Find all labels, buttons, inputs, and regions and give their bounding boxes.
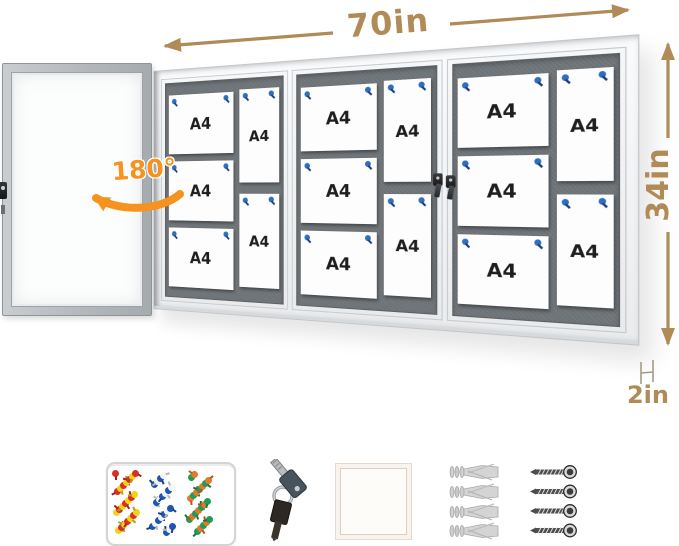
push-pin-icon <box>598 198 606 205</box>
wall-anchors-icon <box>448 464 502 544</box>
push-pin-icon <box>462 160 469 166</box>
push-pin-icon <box>269 90 274 96</box>
push-pin-icon <box>388 84 394 90</box>
push-pin-box <box>106 462 236 546</box>
push-pin-icon <box>561 199 568 206</box>
paper-label: A4 <box>487 99 517 123</box>
push-pin-icon <box>534 239 541 246</box>
push-pin-icon <box>243 197 248 203</box>
a4-paper: A4 <box>239 194 279 289</box>
paper-label: A4 <box>190 248 211 268</box>
bulletin-board-product-illustration: 70in 34in 2in 180° A4 A4 A4 A4 A4 A4 A4 … <box>0 0 679 546</box>
a4-paper: A4 <box>384 194 431 298</box>
push-pin-icon <box>419 81 425 88</box>
push-pin-icon <box>269 197 274 203</box>
a4-paper: A4 <box>169 227 234 290</box>
paper-label: A4 <box>190 181 211 200</box>
a4-paper: A4 <box>301 231 377 299</box>
paper-label: A4 <box>570 114 599 136</box>
width-arrow-right <box>450 10 628 24</box>
a4-paper: A4 <box>239 87 279 182</box>
push-pin-icon <box>462 239 469 246</box>
push-pin-icon <box>172 99 177 105</box>
a4-paper: A4 <box>457 73 548 148</box>
board-section-3: A4 A4 A4 A4 A4 <box>447 47 627 334</box>
door-swing-label: 180° <box>103 152 185 187</box>
paper-label: A4 <box>249 126 269 145</box>
paper-label: A4 <box>395 120 419 140</box>
height-dimension-label: 34in <box>641 145 671 225</box>
screws-icon <box>530 464 580 540</box>
width-arrow-left <box>165 33 333 46</box>
push-pin-icon <box>534 158 541 165</box>
a4-paper: A4 <box>169 92 234 155</box>
open-glass-door <box>2 63 152 316</box>
felt-backing: A4 A4 A4 A4 A4 <box>297 65 437 315</box>
push-pin-icon <box>388 198 394 204</box>
paper-label: A4 <box>395 235 419 255</box>
push-pin-icon <box>462 82 469 89</box>
paper-pad-sheet <box>340 468 407 535</box>
keys-icon <box>256 459 318 543</box>
push-pin-icon <box>223 231 228 237</box>
push-pin-icon <box>223 95 228 101</box>
paper-label: A4 <box>326 181 351 202</box>
felt-backing: A4 A4 A4 A4 A4 <box>165 75 284 304</box>
push-pin-icon <box>305 234 311 240</box>
push-pin-icon <box>561 74 568 81</box>
depth-dimension-label: 2in <box>620 381 676 409</box>
door-latch <box>1 205 5 214</box>
door-glass-panel <box>11 72 143 307</box>
push-pin-icon <box>223 163 228 169</box>
door-lock-icon <box>0 182 7 199</box>
felt-backing: A4 A4 A4 A4 A4 <box>452 53 620 327</box>
paper-label: A4 <box>190 114 211 134</box>
push-pin-icon <box>172 231 177 236</box>
push-pin-icon <box>365 235 371 241</box>
push-pin-icon <box>305 163 311 169</box>
push-pin-icon <box>243 93 248 99</box>
a4-paper: A4 <box>301 83 377 151</box>
board-section-2: A4 A4 A4 A4 A4 <box>292 60 442 321</box>
push-pin-icon <box>534 77 541 84</box>
a4-paper: A4 <box>556 67 613 181</box>
paper-pad <box>335 463 412 540</box>
board-section-1: A4 A4 A4 A4 A4 <box>161 70 288 309</box>
cam-lock-icon <box>433 173 443 186</box>
push-pin-icon <box>598 71 606 78</box>
a4-paper: A4 <box>301 158 377 224</box>
paper-label: A4 <box>249 232 269 251</box>
paper-label: A4 <box>570 240 599 262</box>
push-pin-box-pins <box>108 464 234 544</box>
paper-label: A4 <box>326 107 351 129</box>
paper-label: A4 <box>487 180 517 203</box>
push-pin-icon <box>365 87 371 93</box>
push-pin-icon <box>419 197 425 203</box>
bulletin-board-cabinet: A4 A4 A4 A4 A4 A4 A4 A4 A4 A4 A4 A4 A4 <box>153 34 639 346</box>
push-pin-icon <box>365 161 371 167</box>
push-pin-icon <box>305 91 311 97</box>
a4-paper: A4 <box>384 78 431 182</box>
a4-paper: A4 <box>457 155 548 228</box>
a4-paper: A4 <box>457 234 548 309</box>
a4-paper: A4 <box>556 194 613 308</box>
paper-label: A4 <box>487 259 517 283</box>
paper-label: A4 <box>326 253 351 275</box>
width-dimension-label: 70in <box>331 0 446 46</box>
cam-lock-icon <box>446 175 456 188</box>
